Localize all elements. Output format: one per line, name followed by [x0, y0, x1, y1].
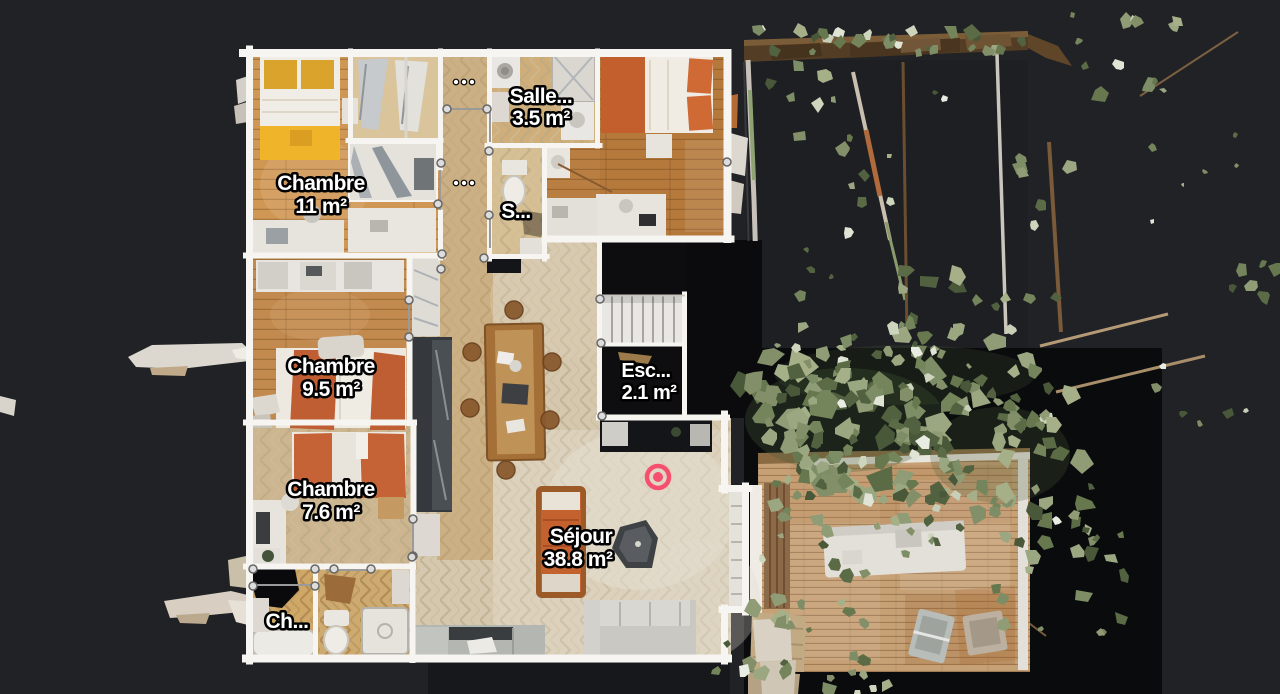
- svg-text:Salle...: Salle...: [510, 85, 573, 108]
- svg-text:Chambre: Chambre: [277, 172, 365, 195]
- svg-text:11 m²: 11 m²: [295, 195, 347, 218]
- svg-text:3.5 m²: 3.5 m²: [512, 107, 570, 130]
- svg-text:7.6 m²: 7.6 m²: [302, 501, 360, 524]
- svg-text:Esc...: Esc...: [621, 360, 670, 382]
- svg-text:Séjour: Séjour: [550, 525, 613, 548]
- svg-text:9.5 m²: 9.5 m²: [302, 378, 360, 401]
- svg-text:Chambre: Chambre: [287, 355, 375, 378]
- svg-text:38.8 m²: 38.8 m²: [544, 548, 613, 571]
- svg-text:2.1 m²: 2.1 m²: [622, 382, 678, 404]
- svg-text:Chambre: Chambre: [287, 478, 375, 501]
- svg-text:S...: S...: [501, 200, 531, 223]
- svg-text:Ch...: Ch...: [266, 610, 309, 633]
